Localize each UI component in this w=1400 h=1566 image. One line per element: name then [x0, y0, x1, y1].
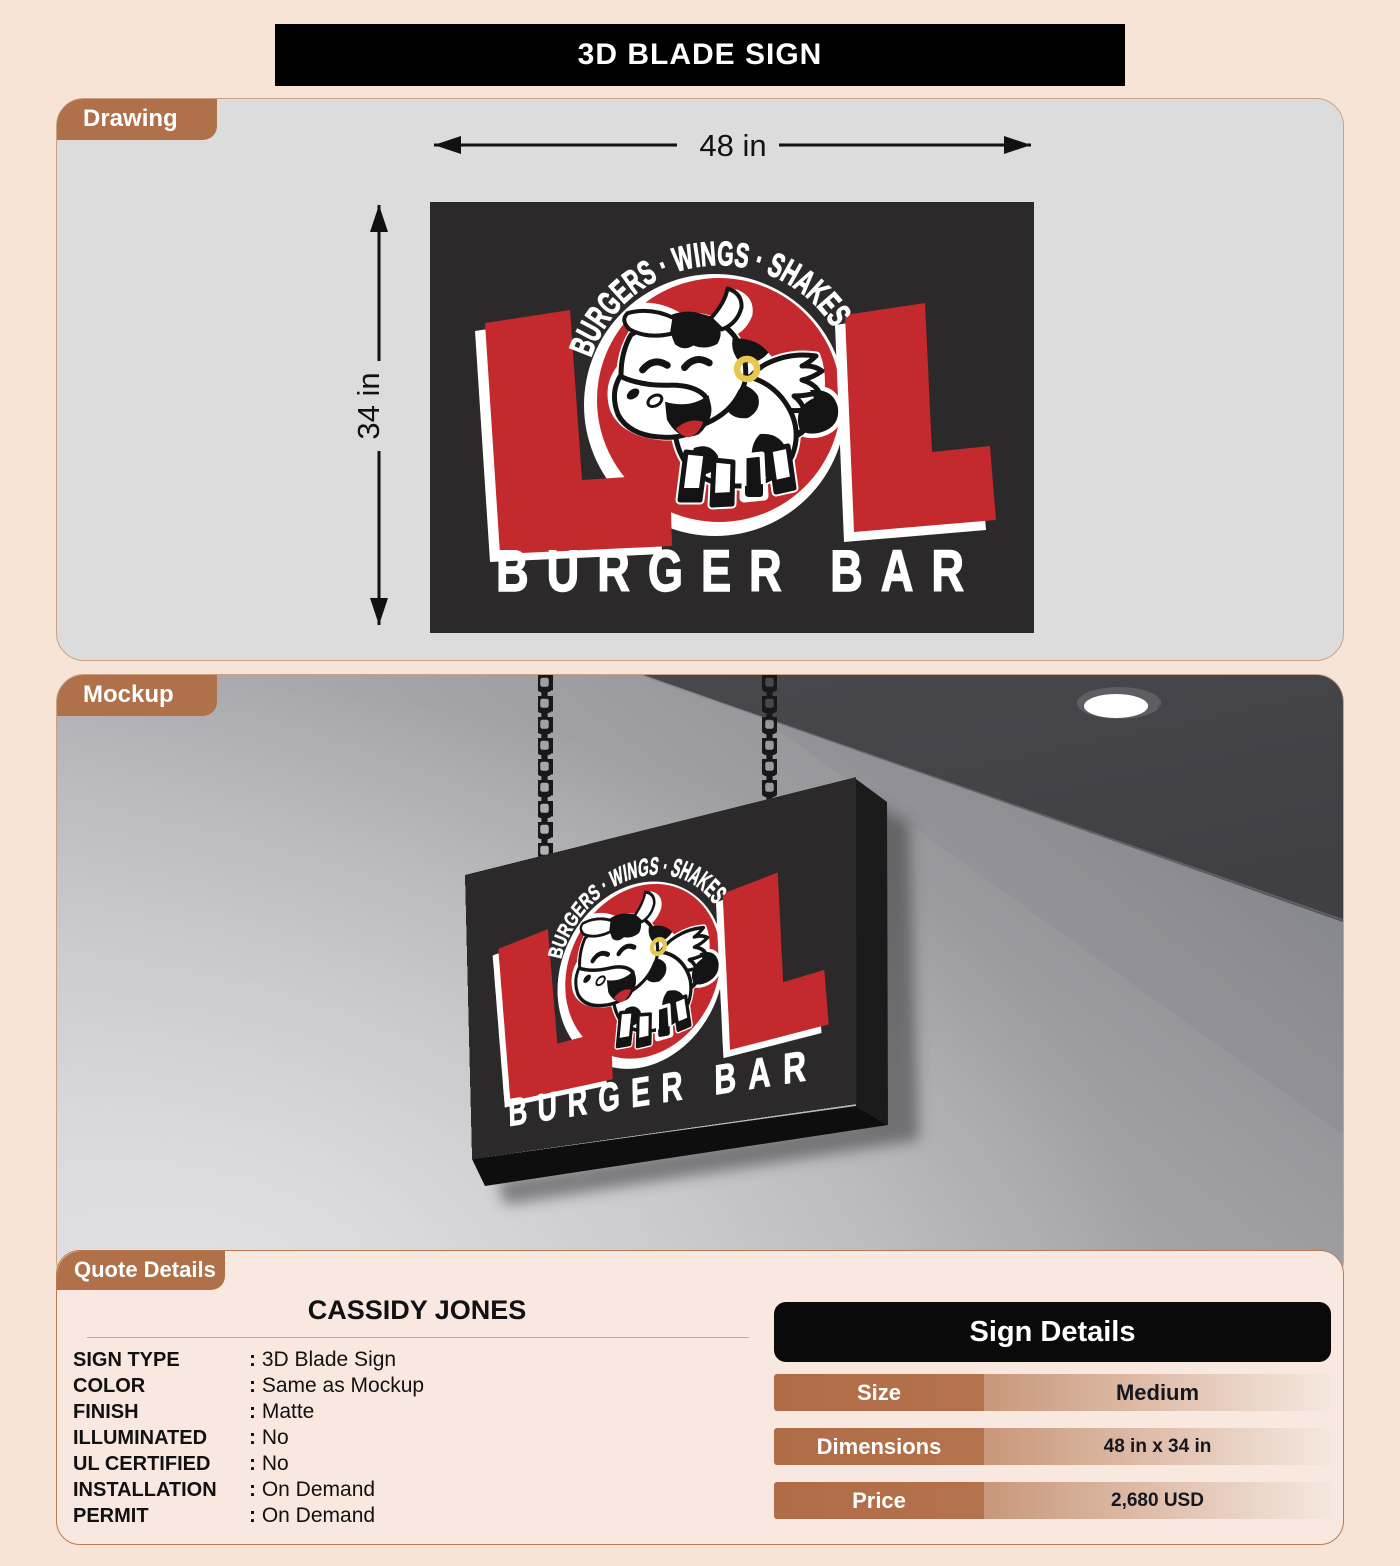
svg-text:48 in: 48 in	[699, 128, 766, 163]
svg-text:34 in: 34 in	[351, 372, 386, 439]
